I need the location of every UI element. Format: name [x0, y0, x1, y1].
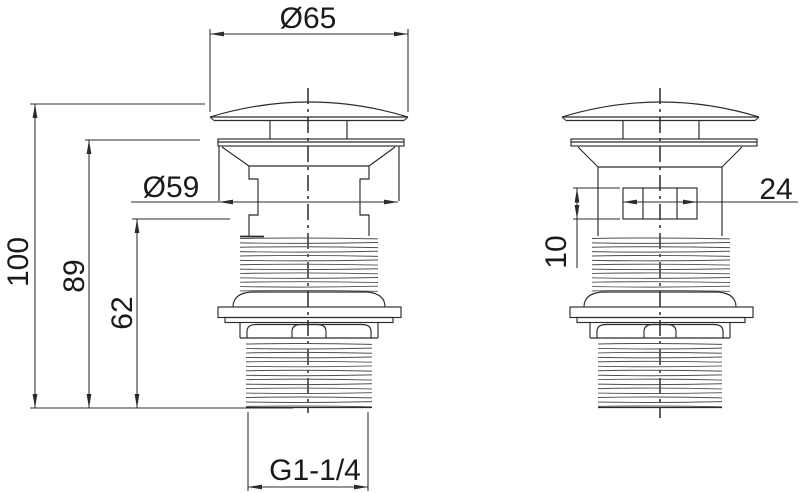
front-view	[210, 88, 408, 413]
body-neck	[249, 166, 369, 236]
arrow-right-icon	[384, 200, 398, 205]
upper-thread	[240, 238, 378, 291]
arrow-up-icon	[575, 189, 580, 203]
dim-outlet-thread-label: G1-1/4	[269, 454, 361, 487]
dim-total-height-label: 100	[2, 237, 35, 287]
dim-outlet-thread: G1-1/4	[248, 412, 368, 491]
dim-slot-height: 10	[540, 188, 620, 269]
arrow-down-icon	[135, 394, 140, 408]
dim-slot-height-label: 10	[540, 235, 573, 268]
arrow-up-icon	[33, 104, 38, 118]
dim-body-diameter: Ø59	[131, 171, 398, 204]
arrow-right-icon	[683, 200, 697, 205]
arrow-left-icon	[210, 32, 224, 37]
arrow-left-icon	[219, 200, 233, 205]
washer-plate	[570, 307, 753, 323]
dim-cap-diameter: Ø65	[210, 2, 408, 112]
dim-lower-section: 62	[106, 219, 230, 408]
drain-valve-technical-drawing: Ø65 100 89 62 Ø59 G1-1/4	[0, 0, 800, 493]
arrow-right-icon	[394, 32, 408, 37]
cap-stem	[623, 121, 699, 139]
dim-lower-section-label: 62	[106, 296, 139, 329]
arrow-down-icon	[87, 394, 92, 408]
dim-slot-width: 24	[623, 173, 798, 206]
mounting-flange	[218, 139, 404, 146]
side-view	[562, 88, 759, 418]
arrow-up-icon	[135, 219, 140, 233]
mounting-flange	[571, 139, 757, 146]
arrow-left-icon	[248, 485, 262, 490]
upper-thread	[592, 238, 730, 291]
outer-shell	[219, 146, 399, 201]
seal-washer	[233, 292, 385, 307]
dim-cap-diameter-label: Ø65	[280, 2, 337, 35]
dim-total-height: 100	[2, 104, 205, 408]
dim-body-diameter-label: Ø59	[143, 171, 200, 204]
cap	[210, 102, 408, 121]
outlet-thread	[246, 343, 372, 406]
arrow-down-icon	[33, 394, 38, 408]
drawing-canvas: Ø65 100 89 62 Ø59 G1-1/4	[0, 0, 800, 493]
dim-slot-width-label: 24	[759, 173, 792, 206]
arrow-left-icon	[623, 200, 637, 205]
dim-height-to-flange-label: 89	[58, 259, 91, 292]
locknut	[240, 323, 378, 339]
arrow-down-icon	[575, 205, 580, 219]
arrow-up-icon	[87, 140, 92, 154]
washer-plate	[218, 307, 401, 323]
